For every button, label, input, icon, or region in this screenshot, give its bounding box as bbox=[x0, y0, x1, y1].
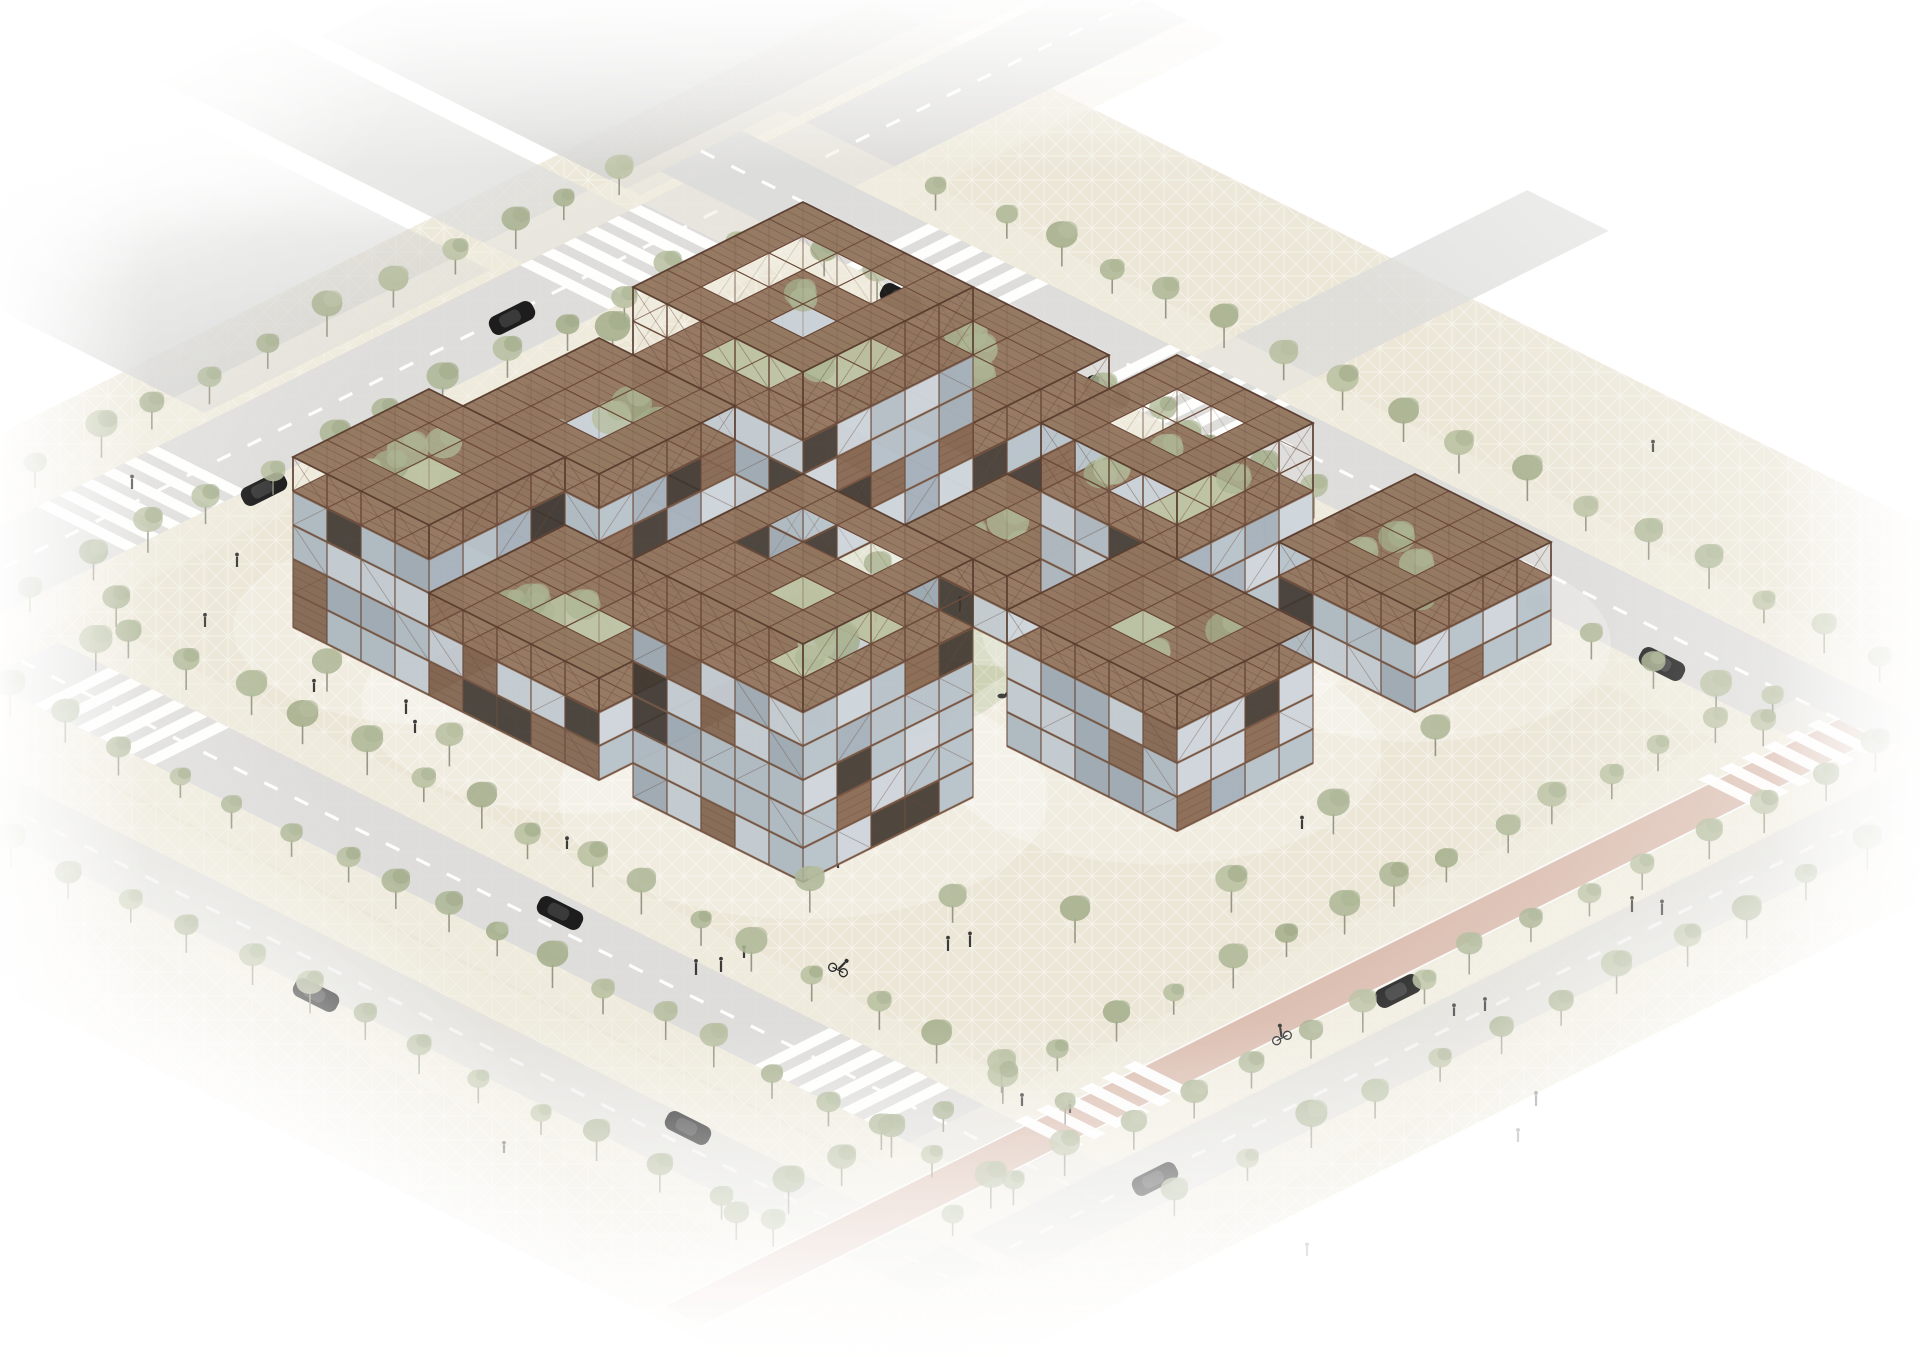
fade-corner-top-left bbox=[0, 0, 430, 300]
site-axonometric-illustration bbox=[0, 0, 1920, 1357]
fade-corner-top-right bbox=[1480, 0, 1920, 340]
fade-corner-bottom-right bbox=[1340, 840, 1920, 1357]
rendering-canvas bbox=[0, 0, 1920, 1357]
fade-corner-bottom-left bbox=[0, 800, 620, 1357]
white-vignette bbox=[0, 0, 1920, 1357]
